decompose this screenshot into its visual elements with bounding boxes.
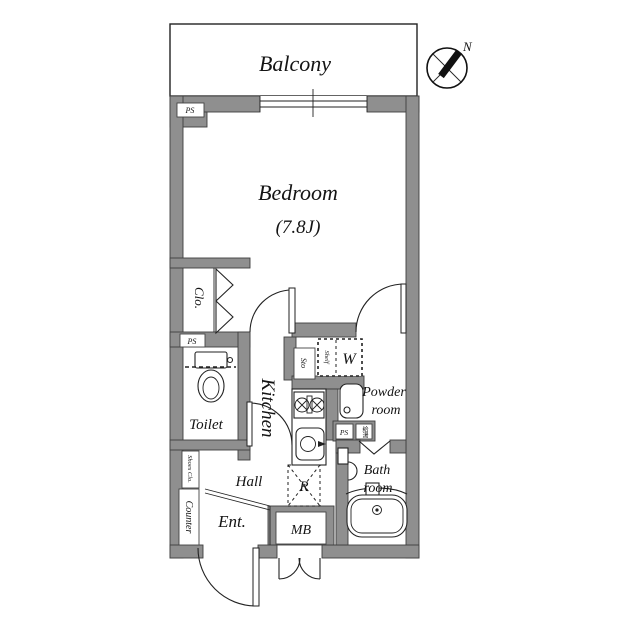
- wall: [258, 545, 277, 558]
- toilet-door-leaf: [247, 402, 252, 446]
- compass-north-label: N: [462, 39, 473, 54]
- powder-room-label-2: room: [371, 403, 400, 418]
- wall: [406, 96, 419, 558]
- bedroom-door-arc: [250, 290, 292, 332]
- closet-folding-door: [214, 268, 233, 333]
- shelf-label: Shelf: [323, 351, 330, 365]
- floor-plan-canvas: Balcony N: [0, 0, 640, 639]
- toilet-flush-knob: [228, 358, 233, 363]
- entry-step-line: [205, 489, 270, 506]
- powder-room-door-arc: [356, 284, 404, 332]
- toilet-fixture: [185, 352, 236, 402]
- bathtub-drain-center: [375, 508, 378, 511]
- entrance-door-leaf: [253, 548, 259, 606]
- bath-room-label-1: Bath: [364, 463, 390, 478]
- bedroom-label: Bedroom: [258, 180, 338, 205]
- mb-door-arc: [299, 558, 320, 579]
- window-opening: [260, 96, 367, 112]
- wall: [322, 545, 419, 558]
- toilet-label: Toilet: [189, 417, 223, 433]
- powder-room-door-leaf: [401, 284, 406, 333]
- hall-label: Hall: [235, 474, 263, 490]
- shoes-closet-label: Shoes Clo.: [186, 455, 193, 483]
- bath-room-label-2: room: [363, 481, 392, 496]
- compass-icon: N: [427, 39, 473, 88]
- mb-door-arc: [279, 558, 300, 579]
- wall: [292, 323, 356, 337]
- washer-label: W: [342, 351, 357, 368]
- bath-folding-door: [359, 441, 390, 454]
- toilet-tank: [195, 352, 227, 368]
- storage-label: Sto: [299, 358, 308, 368]
- kitchen-label: Kitchen: [257, 377, 278, 437]
- bedroom-door-leaf: [289, 288, 295, 333]
- wall: [170, 258, 250, 268]
- wall: [390, 440, 406, 453]
- powder-sink: [340, 384, 363, 418]
- folding-door-panel: [216, 269, 233, 301]
- meter-box-label: MB: [290, 523, 312, 538]
- bath-wall-cabinet: [338, 448, 348, 464]
- pipe-space-label: PS: [185, 106, 195, 115]
- refrigerator-label: R: [298, 479, 308, 495]
- entrance-label: Ent.: [217, 512, 246, 531]
- bedroom-size-label: (7.8J): [276, 217, 321, 238]
- floor-plan: Balcony N: [0, 0, 640, 639]
- balcony: Balcony: [170, 24, 417, 96]
- water-heater-label: 給湯: [361, 425, 368, 439]
- pipe-space-label: PS: [339, 428, 349, 437]
- pipe-space-label: PS: [187, 337, 197, 346]
- entrance-door-arc: [198, 548, 256, 606]
- balcony-label: Balcony: [259, 51, 331, 76]
- bath-shower-fixture: [348, 462, 357, 480]
- powder-sink-drain: [344, 407, 350, 413]
- powder-room-fixtures: [340, 384, 363, 418]
- counter-label: Counter: [183, 501, 194, 534]
- folding-door-panel: [216, 301, 233, 333]
- toilet-bowl: [198, 370, 224, 402]
- powder-room-label-1: Powder: [361, 385, 406, 400]
- wall: [170, 440, 250, 450]
- entry-step-line: [205, 493, 270, 510]
- closet-label: Clo.: [192, 287, 207, 309]
